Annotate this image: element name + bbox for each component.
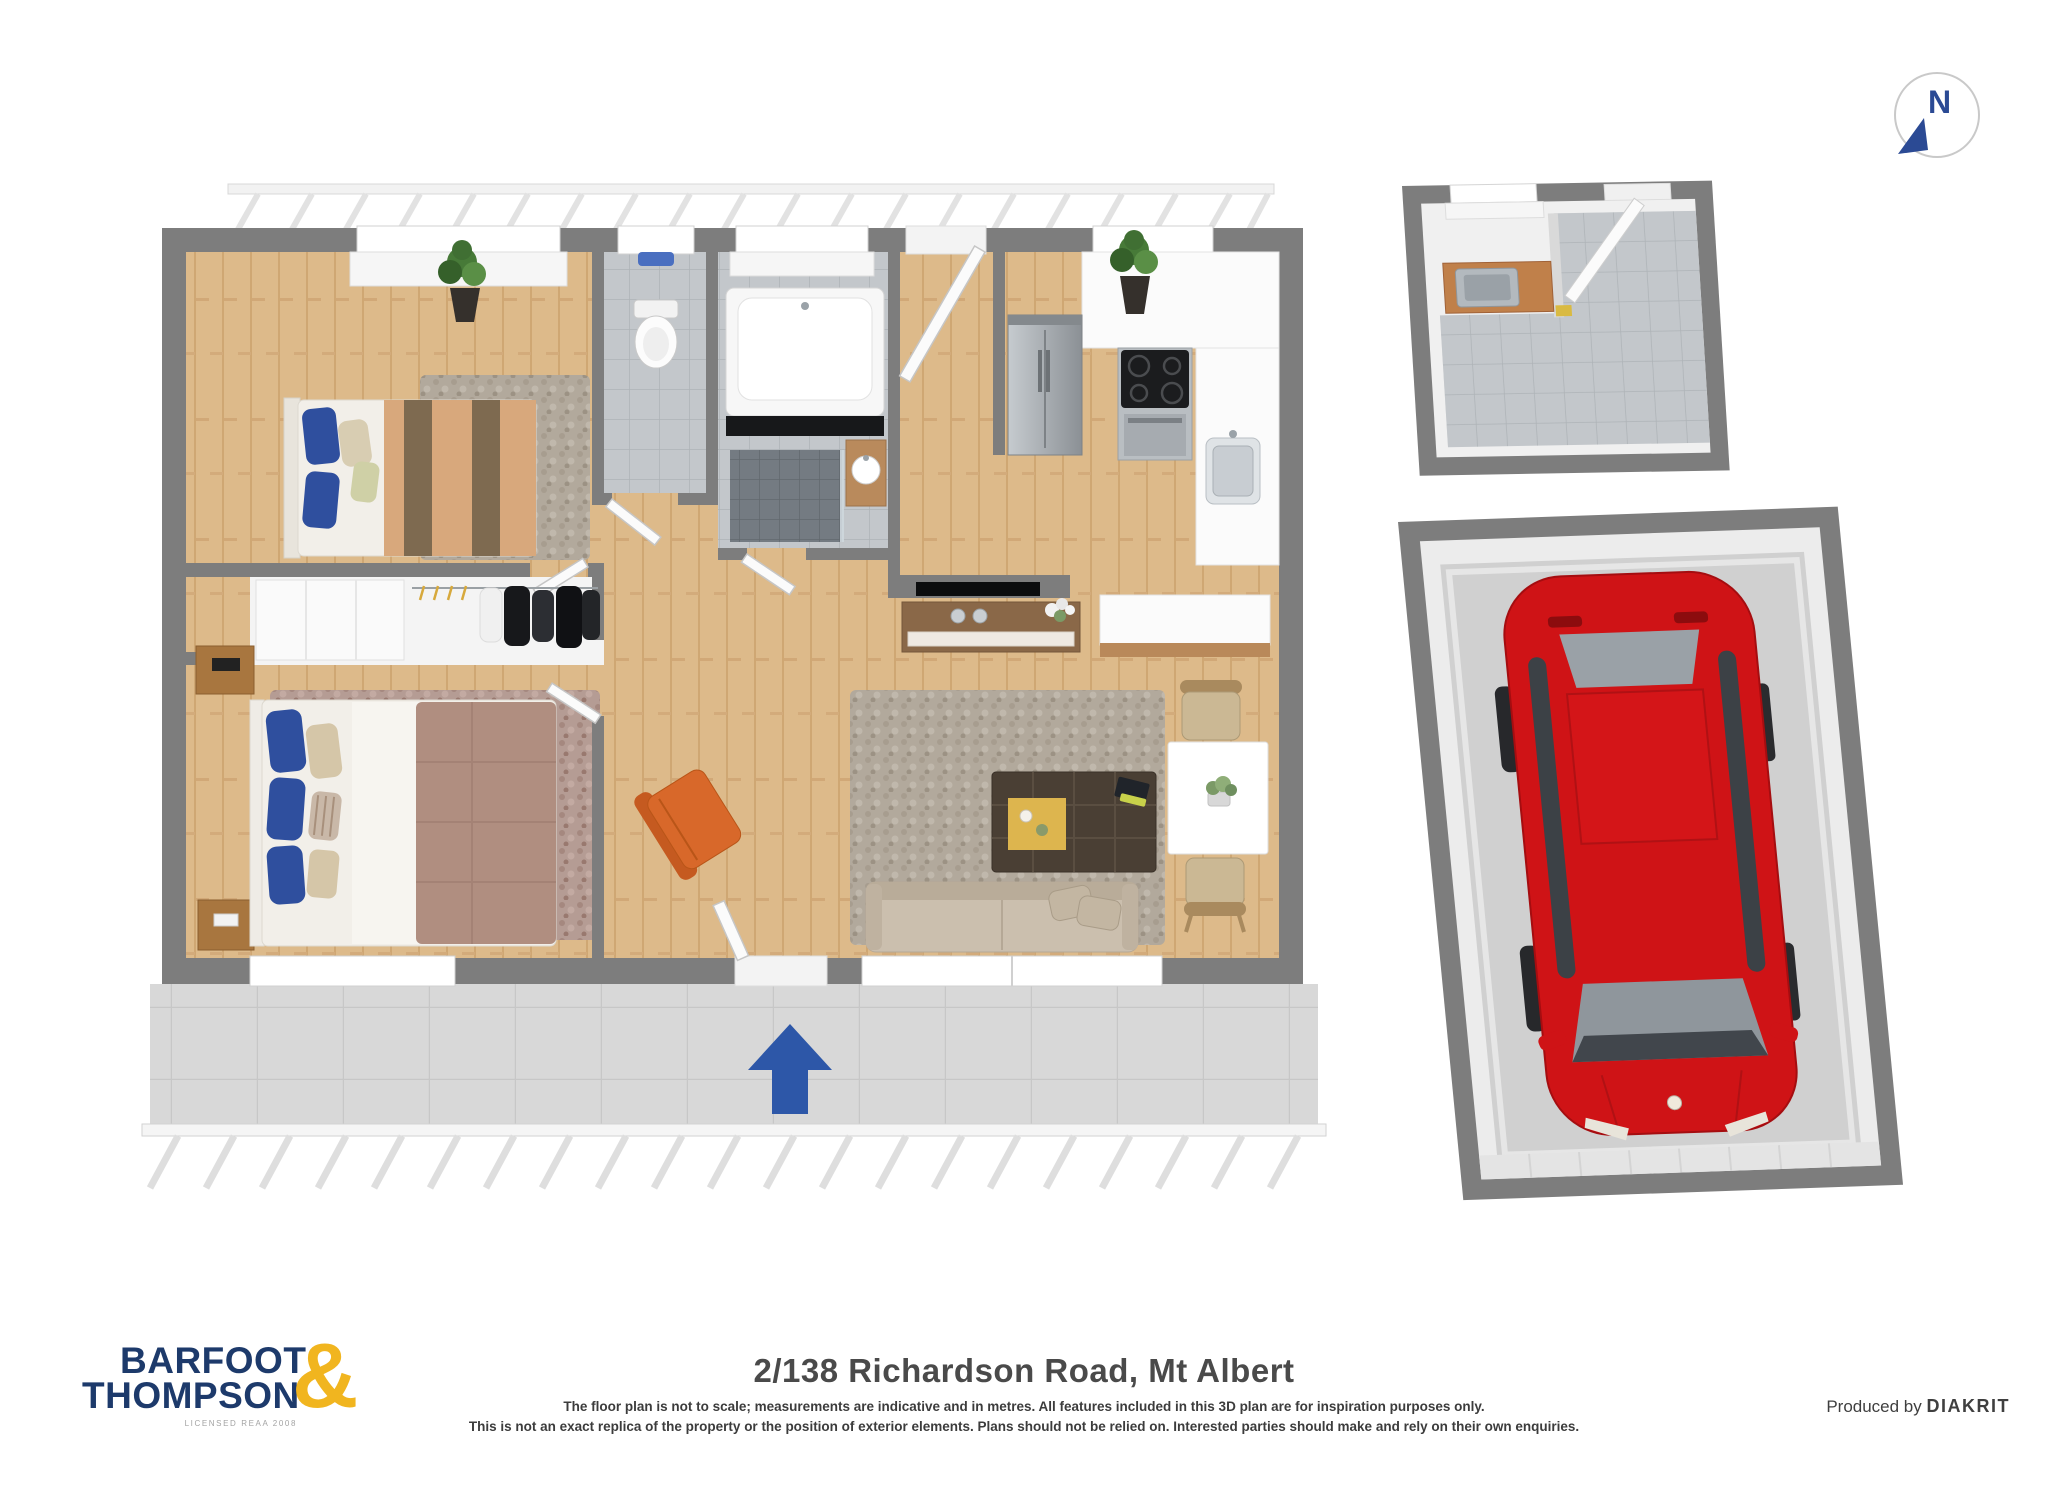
nightstand-bottom [198, 900, 254, 950]
car-rear-window [1559, 630, 1704, 689]
patio [142, 984, 1326, 1188]
disclaimer-line2: This is not an exact replica of the prop… [469, 1419, 1579, 1434]
property-address: 2/138 Richardson Road, Mt Albert [324, 1352, 1724, 1390]
laundry-window [1450, 184, 1537, 203]
north-compass: N [1894, 72, 1980, 158]
bedroom1 [284, 398, 536, 558]
kitchen-peninsula [1100, 595, 1270, 657]
logo-licence: LICENSED REAA 2008 [82, 1420, 297, 1428]
north-arrow-icon [1896, 114, 1940, 158]
kitchen-counter-top [1082, 252, 1279, 348]
barfoot-thompson-logo: BARFOOT THOMPSON & LICENSED REAA 2008 [82, 1342, 352, 1428]
laundry-bench [1443, 261, 1554, 313]
tv [916, 582, 1040, 596]
laundry-room [1402, 181, 1730, 476]
bedroom2-window [250, 956, 455, 986]
address-block: 2/138 Richardson Road, Mt Albert The flo… [324, 1352, 1724, 1436]
disclaimer-line1: The floor plan is not to scale; measurem… [563, 1399, 1484, 1414]
media-console [902, 598, 1080, 652]
garage [1398, 507, 1903, 1200]
dining-chair-top [1180, 680, 1242, 740]
car-roof [1567, 689, 1717, 843]
hanging-clothes [480, 586, 600, 648]
floorplan-page: N BARFOOT THOMPSON & LICENSED REAA 2008 … [0, 0, 2048, 1494]
toilet [634, 300, 678, 368]
floorplan-graphic [0, 0, 2048, 1494]
stove [1118, 348, 1192, 460]
tray [1008, 798, 1066, 850]
patio-railing [150, 1136, 1298, 1188]
disclaimer: The floor plan is not to scale; measurem… [324, 1397, 1724, 1436]
vanity [846, 440, 886, 506]
bathtub-panel [726, 416, 884, 436]
produced-by-label: Produced by [1826, 1397, 1921, 1416]
wc-floor [604, 252, 706, 493]
kitchen-sink [1206, 430, 1260, 504]
shower [730, 450, 842, 542]
front-door-threshold [735, 956, 827, 986]
coffee-table [992, 772, 1156, 872]
bed2-sheet [352, 702, 420, 944]
living-sliding-window [862, 956, 1162, 986]
bathroom-window [730, 226, 874, 276]
threshold-strip [1555, 305, 1572, 316]
producer-name: DIAKRIT [1927, 1396, 2011, 1416]
producer-credit: Produced by DIAKRIT [1700, 1396, 2010, 1417]
fridge [1008, 315, 1082, 455]
sofa [866, 882, 1138, 952]
nightstand-top [196, 646, 254, 694]
